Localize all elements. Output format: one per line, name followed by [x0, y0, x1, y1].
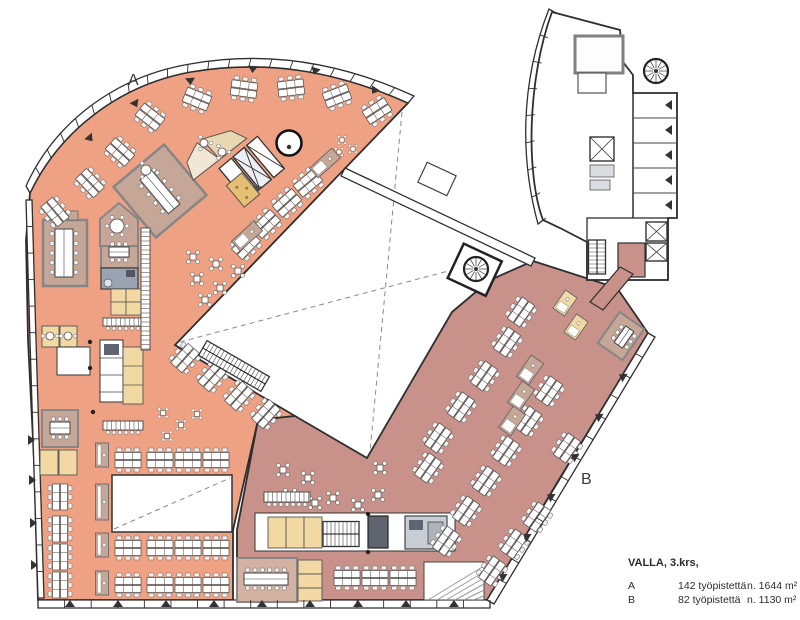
column-dot: [88, 366, 92, 370]
legend-row-b-zone: B: [628, 594, 635, 606]
wc-stack-b: [298, 560, 322, 601]
locker-bench: [264, 492, 310, 507]
legend-row-b-area: n. 1130 m²: [747, 594, 797, 606]
wc-block-b: [268, 517, 322, 548]
tower-large-room: [575, 36, 623, 73]
phone-booth: [59, 450, 77, 475]
legend-row-a-zone: A: [628, 580, 635, 592]
round-room: [277, 131, 302, 156]
atrium-void: [112, 475, 232, 532]
column-dot: [366, 512, 370, 516]
storage-pod: [96, 484, 109, 520]
long-table: [109, 242, 129, 262]
locker-bench: [141, 228, 150, 350]
column-dot: [366, 550, 370, 554]
staircase: [323, 522, 359, 547]
long-table: [50, 417, 70, 439]
courtyard-dashed-line: [370, 112, 402, 452]
zone-b-label: B: [581, 471, 592, 488]
elevator-shaft: [646, 222, 667, 241]
legend-row-b-workstations: 82 työpistettä: [678, 594, 741, 606]
gallery-balcony: [418, 162, 456, 195]
legend-row-a-area: n. 1644 m²: [747, 580, 798, 592]
elevator-shaft: [646, 243, 667, 261]
legend: VALLA, 3.krs, A 142 työpistettä n. 1644 …: [628, 557, 798, 606]
storage-pod: [96, 571, 109, 595]
column-dot: [91, 410, 95, 414]
elevator-shaft: [590, 137, 614, 161]
floor-plan-svg: A B VALLA, 3.krs, A 142 työpistettä n. 1…: [0, 0, 800, 620]
wc-stack: [123, 347, 143, 404]
facade-tick: [187, 64, 188, 72]
terrace-steps: [424, 562, 484, 600]
column-dot: [88, 340, 92, 344]
phone-booth: [40, 450, 58, 475]
service-room: [57, 347, 90, 375]
staircase: [589, 240, 606, 274]
spiral-stair: [644, 59, 668, 83]
legend-row-a-workstations: 142 työpistettä: [678, 580, 746, 592]
zone-a-label: A: [128, 72, 139, 89]
spiral-stair: [464, 257, 488, 281]
floor-plan-image: A B VALLA, 3.krs, A 142 työpistettä n. 1…: [0, 0, 800, 620]
legend-title: VALLA, 3.krs,: [628, 557, 699, 569]
tower-small-room: [578, 73, 606, 93]
wc-block: [111, 289, 141, 315]
dark-room: [368, 516, 388, 548]
storage-pod: [96, 533, 109, 557]
storage-pod: [96, 443, 109, 467]
